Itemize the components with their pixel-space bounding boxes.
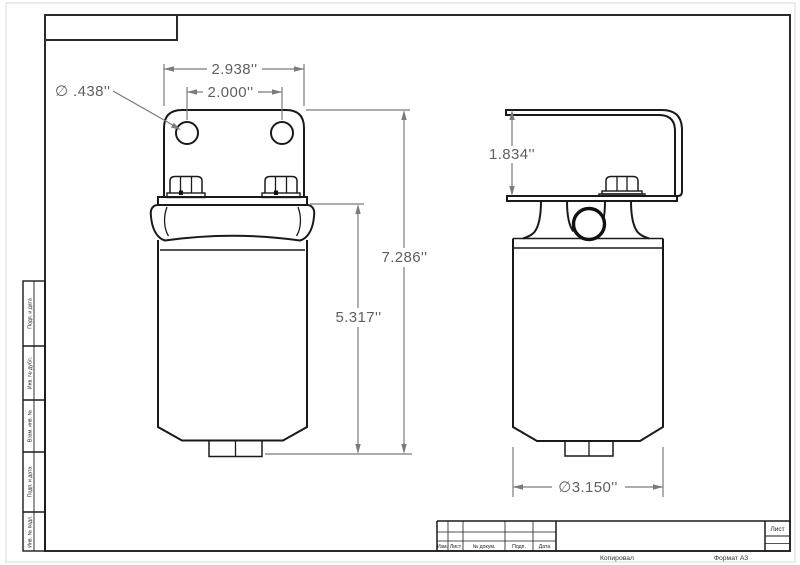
left-col-label-1: Подп. и дата <box>28 298 34 329</box>
left-col-label-3: Взам. инв. № <box>28 409 34 442</box>
dim-text-bracket-height: 1.834'' <box>489 146 535 163</box>
technical-drawing: Подп. и дата Инв. № дубл. Взам. инв. № П… <box>0 0 800 565</box>
sheet-frame <box>6 3 795 562</box>
dim-text-body-diameter: ∅3.150'' <box>558 479 618 496</box>
footer-format-label: Формат А3 <box>714 555 749 562</box>
inlet-port-side <box>574 209 605 240</box>
dim-text-bracket-width: 2.938'' <box>211 61 257 78</box>
dim-text-body-height: 5.317'' <box>335 309 381 326</box>
tb-header-ndocum: № докум. <box>473 544 496 550</box>
tb-header-izm: Изм. <box>437 544 448 550</box>
tb-sheet-label: Лист <box>770 526 784 533</box>
tb-header-podp: Подп. <box>512 544 526 550</box>
dim-text-hole-diameter: ∅ .438'' <box>55 83 110 100</box>
tb-header-data: Дата <box>539 544 551 550</box>
left-col-label-2: Инв. № дубл. <box>28 357 34 389</box>
left-col-label-4: Подп. и дата <box>28 467 34 498</box>
footer-copied-label: Копировал <box>600 555 634 562</box>
dim-text-hole-spacing: 2.000'' <box>207 84 253 101</box>
tb-header-list: Лист <box>450 544 462 550</box>
page-edge <box>6 3 795 562</box>
drawing-page: Подп. и дата Инв. № дубл. Взам. инв. № П… <box>0 0 800 565</box>
left-col-label-5: Инв. № подл. <box>28 515 34 547</box>
dim-text-overall-height: 7.286'' <box>381 249 427 266</box>
